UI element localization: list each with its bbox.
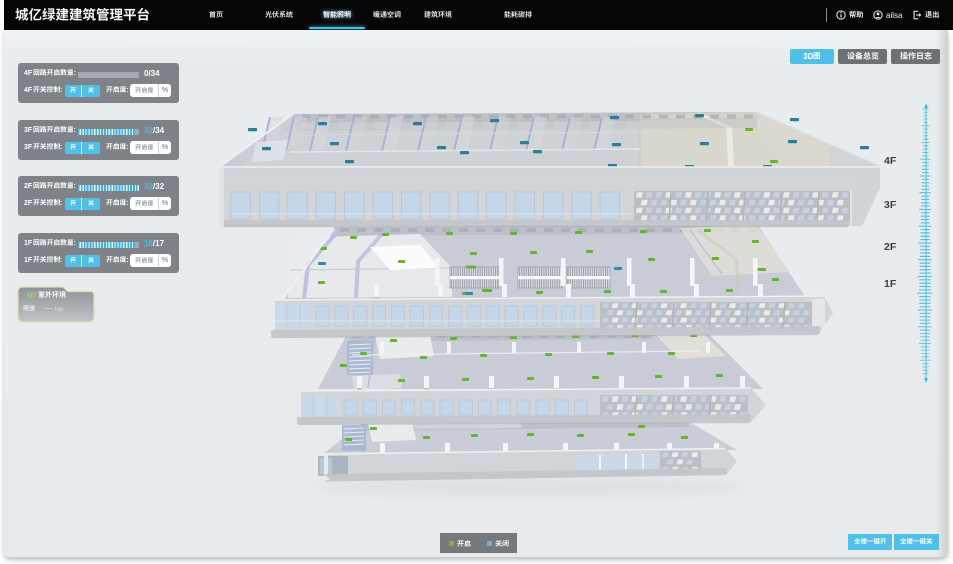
svg-text:3F: 3F: [884, 199, 897, 211]
svg-text:4F: 4F: [884, 155, 897, 167]
svg-text:2F: 2F: [884, 241, 897, 253]
svg-text:1F: 1F: [884, 278, 897, 290]
